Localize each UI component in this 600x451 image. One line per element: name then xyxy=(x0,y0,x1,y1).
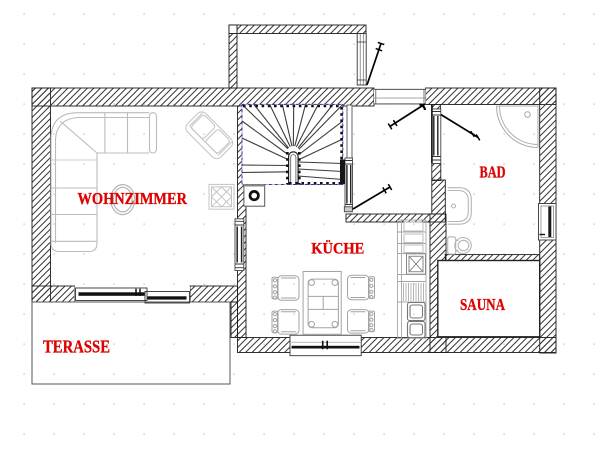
svg-text:BAD: BAD xyxy=(480,163,506,182)
svg-text:WOHNZIMMER: WOHNZIMMER xyxy=(78,189,188,208)
svg-text:KÜCHE: KÜCHE xyxy=(311,239,364,257)
svg-text:TERASSE: TERASSE xyxy=(43,337,110,357)
svg-text:SAUNA: SAUNA xyxy=(460,295,506,314)
